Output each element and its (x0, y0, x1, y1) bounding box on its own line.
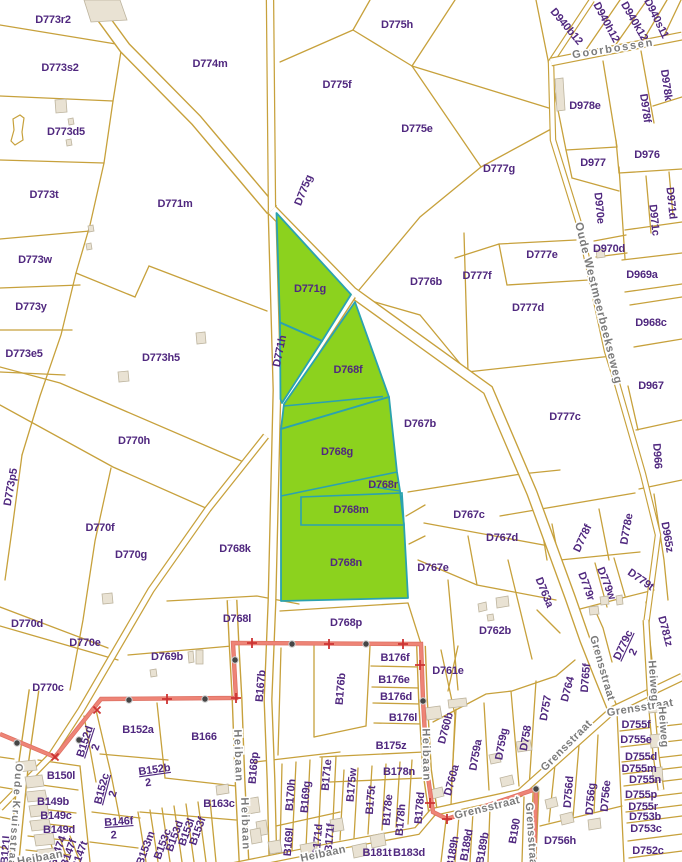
svg-text:D768r: D768r (368, 479, 398, 491)
svg-text:D753b: D753b (629, 811, 661, 823)
svg-text:D767d: D767d (486, 532, 518, 544)
svg-text:D773y: D773y (15, 301, 47, 313)
svg-text:B175z: B175z (376, 740, 407, 752)
svg-text:D970d: D970d (593, 243, 625, 255)
svg-text:D978e: D978e (569, 100, 600, 112)
svg-text:D767c: D767c (453, 509, 484, 521)
svg-text:D770g: D770g (115, 549, 147, 561)
svg-text:D762b: D762b (479, 625, 511, 637)
svg-text:B176d: B176d (380, 691, 412, 703)
svg-text:D770c: D770c (32, 682, 63, 694)
svg-text:D768n: D768n (330, 557, 362, 569)
svg-text:D752c: D752c (632, 845, 663, 857)
svg-text:Heibaan: Heibaan (420, 728, 433, 781)
svg-text:2: 2 (110, 829, 117, 841)
svg-text:D777c: D777c (549, 411, 580, 423)
svg-text:B149d: B149d (43, 824, 75, 836)
svg-text:D768f: D768f (334, 364, 363, 376)
svg-text:D774m: D774m (192, 58, 227, 70)
svg-text:B149c: B149c (40, 810, 71, 822)
svg-text:D966: D966 (650, 443, 664, 469)
svg-text:B175t: B175t (364, 785, 379, 815)
svg-text:B178n: B178n (383, 766, 415, 778)
svg-text:Heibaan: Heibaan (238, 797, 252, 851)
svg-text:D768p: D768p (330, 617, 362, 629)
svg-text:D969a: D969a (626, 269, 658, 281)
svg-text:D770d: D770d (11, 618, 43, 630)
svg-text:D770e: D770e (69, 637, 100, 649)
svg-text:B176f: B176f (381, 652, 410, 664)
svg-text:D773t: D773t (30, 189, 59, 201)
svg-text:D768k: D768k (219, 543, 251, 555)
svg-text:B163c: B163c (203, 798, 234, 810)
svg-text:D773w: D773w (18, 254, 52, 266)
svg-text:D775h: D775h (381, 19, 413, 31)
svg-text:B150l: B150l (47, 770, 75, 782)
svg-text:D753c: D753c (630, 823, 661, 835)
svg-text:D773s2: D773s2 (41, 62, 78, 74)
svg-text:D976: D976 (634, 149, 660, 161)
svg-text:D771g: D771g (294, 283, 326, 295)
svg-text:D767b: D767b (404, 418, 436, 430)
svg-text:D765f: D765f (579, 663, 594, 693)
svg-text:D773r2: D773r2 (35, 14, 71, 26)
svg-text:D776b: D776b (410, 276, 442, 288)
svg-text:D768l: D768l (223, 613, 251, 625)
svg-text:B181t: B181t (363, 847, 392, 859)
svg-text:B169l: B169l (282, 827, 296, 856)
svg-text:D777e: D777e (526, 249, 557, 261)
svg-text:B166: B166 (191, 731, 217, 743)
svg-text:D967: D967 (638, 380, 664, 392)
svg-text:D755n: D755n (629, 774, 661, 786)
svg-text:D771m: D771m (157, 198, 192, 210)
svg-text:D755d: D755d (625, 751, 657, 763)
svg-text:B176l: B176l (389, 712, 417, 724)
svg-text:B152a: B152a (122, 724, 154, 736)
svg-text:D977: D977 (580, 157, 606, 169)
svg-text:D773h5: D773h5 (142, 352, 180, 364)
svg-text:D775f: D775f (323, 79, 352, 91)
svg-text:D968c: D968c (635, 317, 666, 329)
svg-text:D767e: D767e (417, 562, 448, 574)
svg-text:D777g: D777g (483, 163, 515, 175)
svg-text:B149b: B149b (37, 796, 69, 808)
svg-text:D755p: D755p (625, 789, 657, 801)
svg-text:D770h: D770h (118, 435, 150, 447)
svg-text:D769b: D769b (151, 651, 183, 663)
svg-text:D777d: D777d (512, 302, 544, 314)
svg-text:D768g: D768g (321, 446, 353, 458)
svg-text:B183d: B183d (393, 847, 425, 859)
svg-text:D773e5: D773e5 (5, 348, 42, 360)
svg-text:D773d5: D773d5 (47, 126, 85, 138)
svg-text:B146f: B146f (104, 815, 134, 829)
svg-text:D761e: D761e (432, 665, 463, 677)
svg-text:D755e: D755e (620, 734, 651, 746)
svg-text:Heibaan: Heibaan (231, 729, 245, 783)
svg-text:D768m: D768m (333, 504, 368, 516)
svg-text:D755f: D755f (622, 719, 651, 731)
svg-text:D770f: D770f (86, 522, 115, 534)
svg-text:D775e: D775e (401, 123, 432, 135)
svg-text:D756h: D756h (544, 835, 576, 847)
svg-text:D777f: D777f (463, 270, 492, 282)
svg-text:B176e: B176e (378, 674, 409, 686)
